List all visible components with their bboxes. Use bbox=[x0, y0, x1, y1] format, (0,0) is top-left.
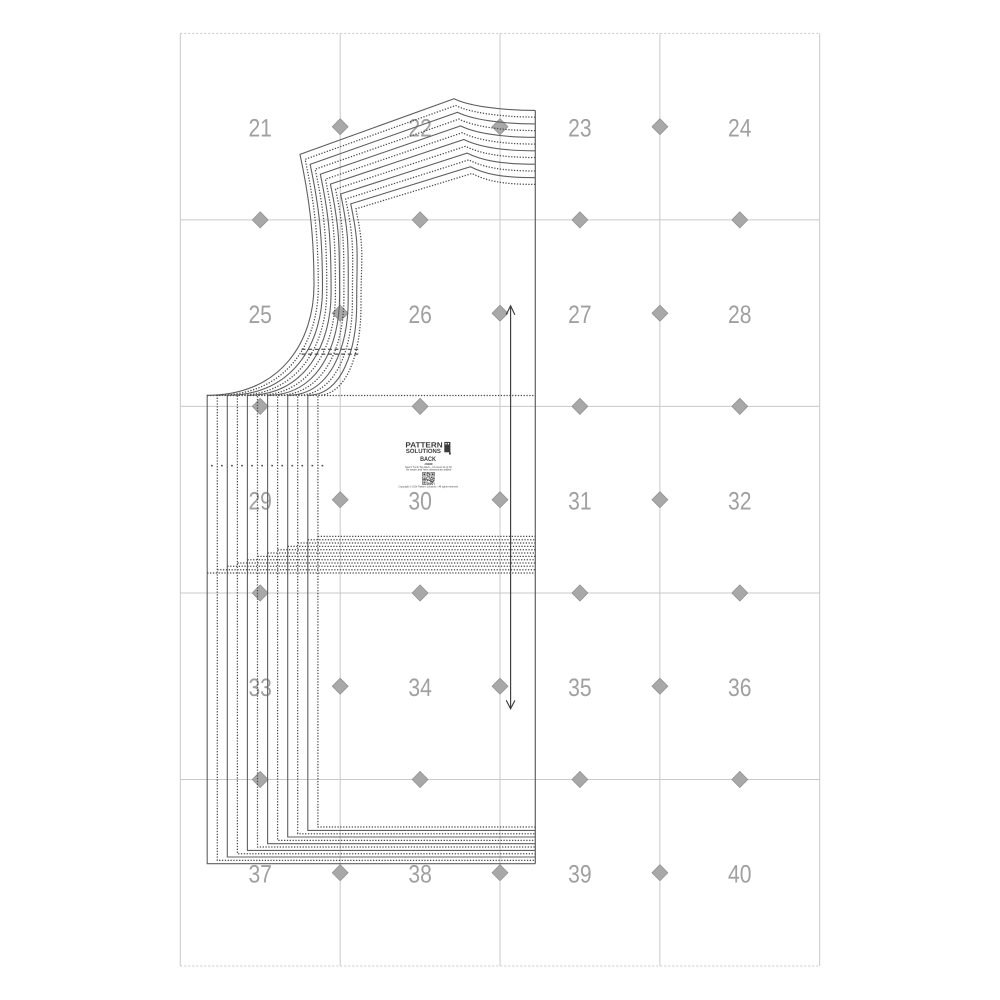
svg-text:31: 31 bbox=[568, 488, 592, 516]
svg-text:30: 30 bbox=[408, 488, 432, 516]
svg-text:24: 24 bbox=[728, 115, 752, 143]
svg-text:29: 29 bbox=[248, 488, 272, 516]
svg-text:21: 21 bbox=[248, 115, 272, 143]
svg-text:34: 34 bbox=[408, 674, 432, 702]
svg-text:Copyright © 2024 Pattern Solut: Copyright © 2024 Pattern Solutions - All… bbox=[399, 485, 459, 488]
svg-text:38: 38 bbox=[408, 861, 432, 889]
svg-text:23: 23 bbox=[568, 115, 592, 143]
svg-text:40: 40 bbox=[728, 861, 752, 889]
svg-text:33: 33 bbox=[248, 674, 272, 702]
svg-text:25: 25 bbox=[248, 301, 272, 329]
svg-text:35: 35 bbox=[568, 674, 592, 702]
svg-text:32: 32 bbox=[728, 488, 752, 516]
svg-text:No seam and hem allowances add: No seam and hem allowances added bbox=[406, 469, 452, 472]
svg-text:27: 27 bbox=[568, 301, 592, 329]
svg-text:SOLUTIONS: SOLUTIONS bbox=[406, 448, 441, 455]
svg-text:28: 28 bbox=[728, 301, 752, 329]
svg-text:37: 37 bbox=[248, 861, 272, 889]
svg-text:39: 39 bbox=[568, 861, 592, 889]
svg-text:36: 36 bbox=[728, 674, 752, 702]
svg-text:26: 26 bbox=[408, 301, 432, 329]
